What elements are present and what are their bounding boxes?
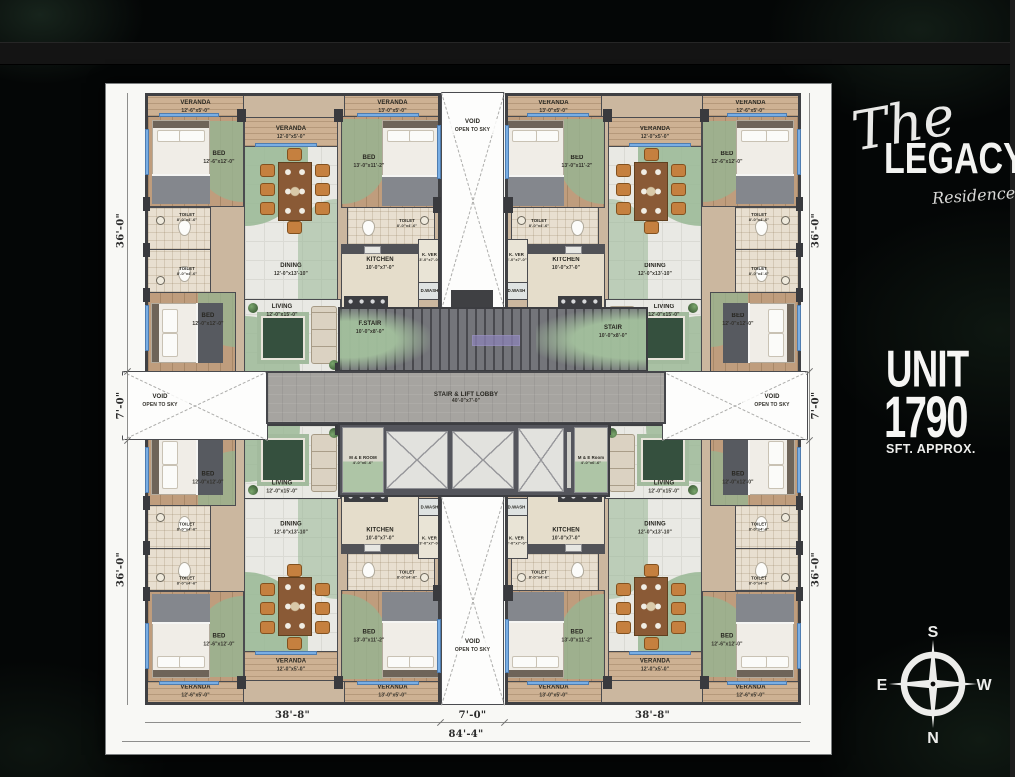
pillow-symbol [741,130,767,142]
duvet-symbol [507,175,564,206]
headboard-symbol [152,304,159,362]
duvet-symbol [723,435,750,495]
void-label: VOIDOPEN TO SKY [442,639,503,653]
room-toilet: TOILET8'-0"x4'-6" [735,548,799,591]
duvet-symbol [196,435,223,495]
headboard-symbol [508,121,563,128]
room-label: KITCHEN10'-0"x7'-0" [534,257,598,271]
toilet-symbol [362,220,375,236]
chair-symbol [260,202,275,215]
headboard-symbol [153,121,209,128]
chair-symbol [315,602,330,615]
room-bed: BED12'-6"x12'-0" [147,591,244,682]
dimension-line-left [127,93,128,705]
room-label: D.WASH [506,505,527,510]
room-label: TOILET8'-0"x4'-6" [164,522,210,532]
window-strip [629,651,691,655]
room-label: D.WASH [419,505,440,510]
floor-plan-poster: VERANDA12'-6"x5'-0" BED12'-6"x12'-0" TOI… [0,0,1015,777]
void-open-to-sky: VOIDOPEN TO SKY [122,371,268,440]
lift-shaft [452,431,514,489]
wall-column [143,587,150,601]
pillow-symbol [741,656,767,668]
duvet-symbol [507,592,564,623]
me-room-label: M & E Room4'-0"x6'-6" [578,455,604,465]
room-label: BED12'-0"x12'-0" [712,313,764,327]
duvet-symbol [736,174,794,204]
kitchen-counter-symbol [527,244,605,254]
window-strip [145,129,149,175]
dimension-label: 38'-8" [505,710,800,721]
lift-shaft [386,431,448,489]
room-label: DINING12'-0"x13'-10" [245,521,337,535]
headboard-symbol [787,436,794,494]
room-label: VERANDA13'-0"x5'-0" [345,684,440,698]
room-label: KITCHEN10'-0"x7'-0" [348,527,412,541]
wall-column [334,109,343,122]
room-label: VERANDA12'-6"x5'-0" [703,100,798,114]
dining-table-symbol [634,577,668,636]
wall-column [237,109,246,122]
window-strip [159,681,219,685]
compass-rose-icon: S N E W [872,618,994,750]
wall-column [700,109,709,122]
room-label: DINING12'-0"x13'-10" [245,263,337,277]
room-dish-wash: D.WASH [418,282,441,300]
me-room-label: M & E ROOM4'-0"x6'-6" [349,455,377,465]
dimension-label: 7'-0" [116,376,127,436]
room-label: BED13'-0"x11'-2" [346,155,392,169]
room-label: TOILET8'-0"x4'-6" [514,218,564,228]
room-dish-wash: D.WASH [505,498,528,516]
room-label: D.WASH [419,288,440,293]
duvet-symbol [382,592,439,623]
lift-core: M & E ROOM4'-0"x6'-6" M & E Room4'-0"x6'… [338,423,610,497]
chair-symbol [315,202,330,215]
headboard-symbol [508,670,563,677]
window-strip [357,681,419,685]
dining-table-symbol [634,162,668,221]
room-label: BED12'-6"x12'-0" [702,151,752,165]
stair-lift-lobby: STAIR & LIFT LOBBY40'-0"x7'-0" [266,371,666,424]
chair-symbol [671,583,686,596]
shower-symbol [156,276,165,285]
bed-symbol [151,435,223,495]
shower-symbol [781,513,790,522]
room-label: BED12'-0"x12'-0" [712,471,764,485]
wall-column [143,197,150,211]
room-bed: BED13'-0"x11'-2" [341,590,441,682]
chair-symbol [616,583,631,596]
room-label: K. VER3'-0"x7'-0" [419,536,440,546]
void-label: VOIDOPEN TO SKY [131,394,189,408]
lift-shaft [518,428,564,492]
room-label: DINING12'-0"x13'-10" [609,263,701,277]
room-label: TOILET8'-0"x4'-6" [382,218,432,228]
headboard-symbol [152,436,159,494]
room-toilet: TOILET8'-0"x4'-6" [735,505,799,549]
room-bed: BED12'-6"x12'-0" [702,116,799,207]
room-label: VERANDA12'-6"x5'-0" [148,684,243,698]
wall-column [237,676,246,689]
window-strip [159,113,219,117]
window-strip [527,113,589,117]
dining-set-symbol [615,565,691,647]
dining-set-symbol [255,565,331,647]
headboard-symbol [737,670,793,677]
sofa-symbol [609,434,635,492]
stair-label: STAIR10'-0"x8'-0" [580,325,646,339]
chair-symbol [616,621,631,634]
room-toilet: TOILET8'-0"x4'-6" [147,207,211,250]
room-dining: DINING12'-0"x13'-10" [608,146,702,300]
room-label: TOILET8'-0"x4'-6" [736,522,782,532]
pillow-symbol [409,130,434,142]
void-open-to-sky: VOIDOPEN TO SKY [441,92,504,309]
lift-rail [567,432,571,488]
duvet-symbol [152,174,210,204]
wall-column [143,288,150,302]
wall-column [143,243,150,257]
room-kitchen-veranda: K. VER3'-0"x7'-0" [505,515,528,559]
room-toilet: TOILET8'-0"x4'-6" [147,505,211,549]
room-label: VERANDA12'-0"x5'-0" [245,126,337,140]
pillow-symbol [768,465,784,489]
dimension-label: 38'-8" [145,710,440,721]
pillow-symbol [179,130,205,142]
stove-symbol [344,296,388,307]
stove-symbol [558,296,602,307]
room-label: DINING12'-0"x13'-10" [609,521,701,535]
pillow-symbol [768,441,784,465]
rug-symbol [257,312,309,364]
chair-symbol [671,602,686,615]
chair-symbol [260,602,275,615]
pillow-symbol [768,333,784,357]
wall-column [796,496,803,510]
room-dining: DINING12'-0"x13'-10" [244,498,338,652]
chair-symbol [671,621,686,634]
wall-column [603,109,612,122]
chair-symbol [644,148,659,161]
room-label: BED13'-0"x11'-2" [346,629,392,643]
room-dining: DINING12'-0"x13'-10" [608,498,702,652]
room-label: VERANDA12'-0"x5'-0" [245,658,337,672]
room-kitchen: KITCHEN10'-0"x7'-0" [527,488,605,554]
room-bed: BED12'-6"x12'-0" [147,116,244,207]
room-label: TOILET8'-0"x4'-6" [164,212,210,222]
chair-symbol [260,164,275,177]
window-strip [797,129,801,175]
room-label: VERANDA12'-0"x5'-0" [609,126,701,140]
pillow-symbol [179,656,205,668]
room-label: BED12'-0"x12'-0" [182,313,234,327]
room-label: VERANDA12'-0"x5'-0" [609,658,701,672]
pillow-symbol [512,656,537,668]
room-bed: BED13'-0"x11'-2" [505,116,605,208]
room-bed: BED12'-6"x12'-0" [702,591,799,682]
chair-symbol [315,621,330,634]
chair-symbol [616,202,631,215]
dimension-label: 36'-0" [116,540,127,600]
wall-column [143,496,150,510]
shower-symbol [781,216,790,225]
chair-symbol [644,637,659,650]
staircase: F.STAIR10'-0"x8'-0" STAIR10'-0"x8'-0" [338,307,648,372]
room-bed: BED12'-0"x12'-0" [710,292,799,373]
kitchen-counter-symbol [341,244,419,254]
shower-symbol [781,573,790,582]
void-open-to-sky: VOIDOPEN TO SKY [441,496,504,705]
room-dish-wash: D.WASH [505,282,528,300]
me-room: M & E ROOM4'-0"x6'-6" [342,427,384,493]
wall-column [143,541,150,555]
wall-column [503,585,513,601]
pillow-symbol [534,656,559,668]
toilet-symbol [571,220,584,236]
fire-stair-label: F.STAIR10'-0"x8'-0" [340,321,400,335]
toilet-symbol [178,220,191,236]
compass-west-label: W [976,677,992,694]
rug-symbol [257,434,309,486]
room-label: KITCHEN10'-0"x7'-0" [348,257,412,271]
dining-set-symbol [255,151,331,233]
chair-symbol [644,564,659,577]
room-label: KITCHEN10'-0"x7'-0" [534,527,598,541]
void-label: VOIDOPEN TO SKY [442,119,503,133]
wall-column [796,197,803,211]
bed-symbol [723,435,795,495]
room-label: TOILET8'-0"x4'-6" [382,570,432,580]
dimension-label: 36'-0" [811,201,822,261]
rug-symbol [637,434,689,486]
chair-symbol [260,183,275,196]
duvet-symbol [152,594,210,624]
room-label: TOILET8'-0"x4'-6" [164,266,210,276]
room-dining: DINING12'-0"x13'-10" [244,146,338,300]
room-kitchen-veranda: K. VER3'-0"x7'-0" [418,515,441,559]
bed-symbol [723,303,795,363]
room-bed: BED13'-0"x11'-2" [341,116,441,208]
chair-symbol [671,202,686,215]
dining-table-symbol [278,577,312,636]
room-label: VERANDA12'-6"x5'-0" [703,684,798,698]
window-strip [727,681,787,685]
wall-stub [451,290,493,308]
chair-symbol [616,602,631,615]
chair-symbol [671,183,686,196]
room-kitchen: KITCHEN10'-0"x7'-0" [341,244,419,310]
void-open-to-sky: VOIDOPEN TO SKY [662,371,808,440]
pillow-symbol [768,309,784,333]
kitchen-counter-symbol [527,544,605,554]
room-label: BED12'-6"x12'-0" [194,151,244,165]
unit-area-number: 1790 [884,384,967,451]
shower-symbol [781,276,790,285]
top-band [0,42,1015,65]
headboard-symbol [737,121,793,128]
chair-symbol [616,164,631,177]
stair-landing-rail [472,335,520,346]
window-strip [527,681,589,685]
dining-set-symbol [615,151,691,233]
room-label: VERANDA13'-0"x5'-0" [345,100,440,114]
wall-column [334,676,343,689]
room-label: TOILET8'-0"x4'-6" [736,266,782,276]
pillow-symbol [162,309,178,333]
duvet-symbol [196,303,223,363]
headboard-symbol [383,670,438,677]
compass-center-dot [931,682,936,687]
chair-symbol [287,221,302,234]
toilet-symbol [755,220,768,236]
window-strip [797,623,801,669]
unit-area-units: SFT. APPROX. [886,442,976,456]
compass-south-label: S [928,624,939,641]
room-toilet: TOILET8'-0"x4'-6" [735,249,799,293]
room-label: BED12'-6"x12'-0" [194,633,244,647]
lobby-label: STAIR & LIFT LOBBY40'-0"x7'-0" [434,391,498,405]
room-toilet: TOILET8'-0"x4'-6" [147,249,211,293]
wall-column [796,587,803,601]
window-strip [255,651,317,655]
wall-column [700,676,709,689]
room-toilet: TOILET8'-0"x4'-6" [147,548,211,591]
room-label: VERANDA13'-0"x5'-0" [506,684,601,698]
window-strip [629,143,691,147]
room-label: LIVING12'-0"x15'-0" [251,480,313,494]
compass-east-label: E [877,677,888,694]
chair-symbol [616,183,631,196]
room-label: BED13'-0"x11'-2" [554,155,600,169]
room-label: BED13'-0"x11'-2" [554,629,600,643]
dimension-label-total: 84'-4" [122,729,810,740]
wall-column [503,197,513,213]
room-label: VERANDA12'-6"x5'-0" [148,100,243,114]
room-toilet: TOILET8'-0"x4'-6" [735,207,799,250]
dimension-label: 36'-0" [811,540,822,600]
room-kitchen: KITCHEN10'-0"x7'-0" [341,488,419,554]
pillow-symbol [162,333,178,357]
headboard-symbol [787,304,794,362]
room-living: LIVING12'-0"x15'-0" [244,299,341,373]
pillow-symbol [534,130,559,142]
window-strip [145,447,149,493]
chair-symbol [287,637,302,650]
wall-column [796,541,803,555]
dining-table-symbol [278,162,312,221]
chair-symbol [287,148,302,161]
duvet-symbol [736,594,794,624]
right-edge-strip [1010,0,1015,777]
chair-symbol [260,583,275,596]
window-strip [727,113,787,117]
wall-column [796,288,803,302]
room-label: VERANDA13'-0"x5'-0" [506,100,601,114]
chair-symbol [671,164,686,177]
room-kitchen-veranda: K. VER3'-0"x7'-0" [505,239,528,283]
room-label: K. VER3'-0"x7'-0" [419,252,440,262]
window-strip [505,125,509,179]
chair-symbol [315,164,330,177]
room-label: TOILET8'-0"x4'-6" [514,570,564,580]
window-strip [145,623,149,669]
sofa-symbol [311,306,337,364]
room-label: TOILET8'-0"x4'-6" [736,576,782,586]
room-label: D.WASH [506,288,527,293]
headboard-symbol [153,670,209,677]
chair-symbol [287,564,302,577]
toilet-symbol [362,562,375,578]
dimension-label: 7'-0" [811,376,822,436]
shower-symbol [156,513,165,522]
room-bed: BED13'-0"x11'-2" [505,590,605,682]
room-bed: BED12'-0"x12'-0" [147,292,236,373]
pillow-symbol [409,656,434,668]
wall-column [796,243,803,257]
chair-symbol [260,621,275,634]
wall-column [603,676,612,689]
room-veranda: VERANDA12'-0"x5'-0" [608,651,702,681]
room-label: TOILET8'-0"x4'-6" [736,212,782,222]
window-strip [357,113,419,117]
pillow-symbol [162,441,178,465]
dimension-label: 36'-0" [116,201,127,261]
room-kitchen-veranda: K. VER3'-0"x7'-0" [418,239,441,283]
duvet-symbol [382,175,439,206]
kitchen-counter-symbol [341,544,419,554]
dimension-line-total [122,741,810,742]
chair-symbol [644,221,659,234]
room-dish-wash: D.WASH [418,498,441,516]
pillow-symbol [763,130,789,142]
void-label: VOIDOPEN TO SKY [743,394,801,408]
room-label: TOILET8'-0"x4'-6" [164,576,210,586]
room-kitchen: KITCHEN10'-0"x7'-0" [527,244,605,310]
headboard-symbol [383,121,438,128]
window-strip [797,305,801,351]
logo-residence-script: Residence [931,183,1015,208]
room-label: K. VER3'-0"x7'-0" [506,536,527,546]
dimension-label: 7'-0" [441,710,504,721]
toilet-symbol [571,562,584,578]
window-strip [797,447,801,493]
room-label: BED12'-0"x12'-0" [182,471,234,485]
pillow-symbol [512,130,537,142]
pillow-symbol [162,465,178,489]
window-strip [505,619,509,673]
me-room: M & E Room4'-0"x6'-6" [574,427,608,493]
chair-symbol [315,583,330,596]
room-label: LIVING12'-0"x15'-0" [251,304,313,318]
chair-symbol [315,183,330,196]
window-strip [255,143,317,147]
room-label: BED12'-6"x12'-0" [702,633,752,647]
room-label: LIVING12'-0"x15'-0" [633,480,695,494]
compass-north-label: N [927,730,939,747]
bed-symbol [151,303,223,363]
dimension-line-bottom [145,722,801,723]
duvet-symbol [723,303,750,363]
sofa-symbol [311,434,337,492]
window-strip [145,305,149,351]
room-veranda: VERANDA12'-0"x5'-0" [244,651,338,681]
room-label: K. VER3'-0"x7'-0" [506,252,527,262]
pillow-symbol [763,656,789,668]
